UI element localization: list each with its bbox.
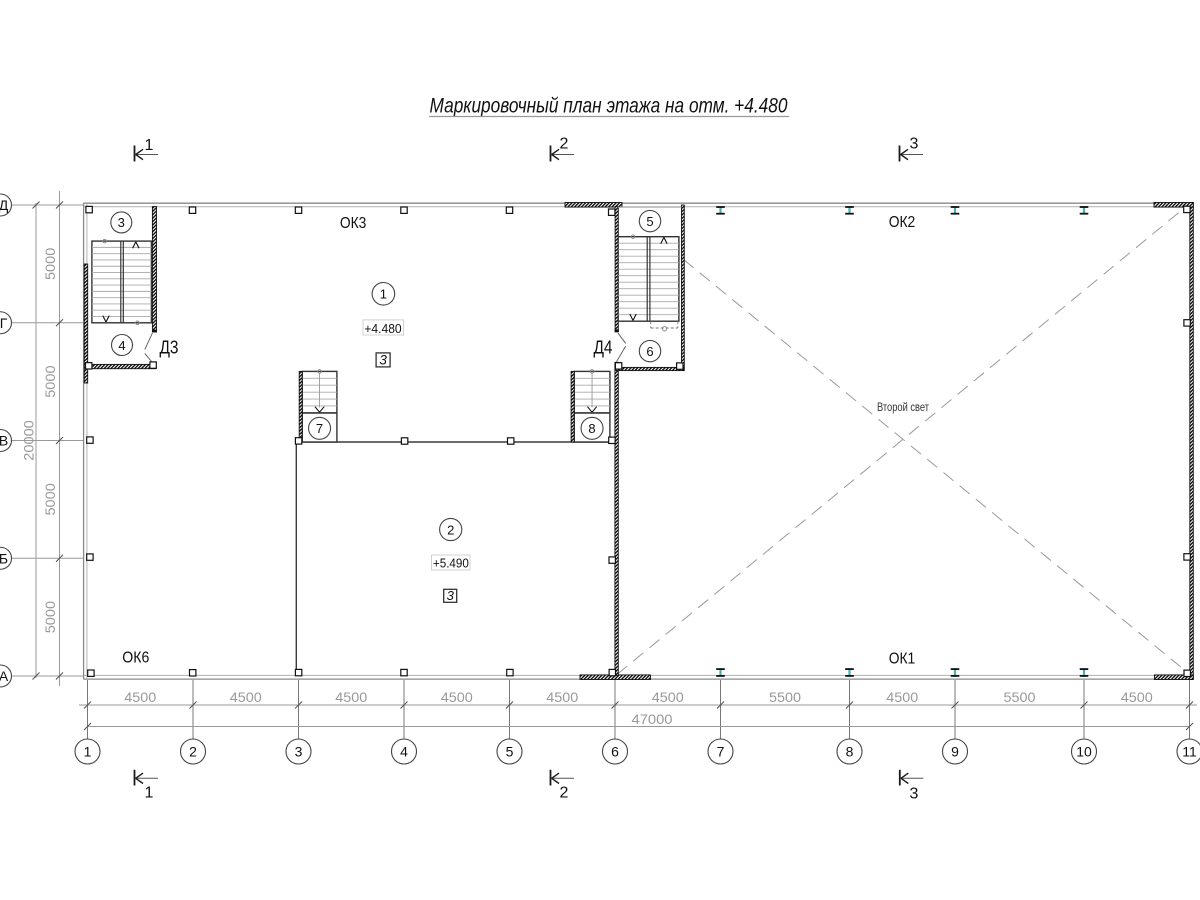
svg-text:11: 11	[1182, 744, 1197, 760]
svg-text:Маркировочный план этажа на от: Маркировочный план этажа на отм. +4.480	[430, 94, 788, 118]
svg-text:ОК3: ОК3	[340, 215, 367, 232]
svg-text:7: 7	[717, 744, 725, 760]
svg-text:2: 2	[560, 136, 569, 153]
svg-text:ОК6: ОК6	[122, 650, 149, 667]
svg-text:Д4: Д4	[594, 338, 613, 358]
svg-text:5000: 5000	[43, 365, 58, 398]
svg-text:8: 8	[588, 421, 595, 436]
svg-text:9: 9	[951, 744, 959, 760]
svg-text:2: 2	[189, 744, 197, 760]
svg-text:Д: Д	[0, 197, 9, 213]
svg-text:4500: 4500	[546, 690, 578, 705]
svg-text:5000: 5000	[43, 601, 58, 634]
svg-text:4500: 4500	[652, 690, 684, 705]
svg-text:5500: 5500	[769, 690, 801, 705]
svg-text:4500: 4500	[335, 690, 367, 705]
svg-text:5000: 5000	[43, 247, 58, 280]
svg-text:3: 3	[118, 215, 125, 230]
svg-text:+5.490: +5.490	[433, 556, 469, 571]
svg-text:4500: 4500	[886, 690, 918, 705]
svg-text:4500: 4500	[124, 690, 156, 705]
svg-text:В: В	[0, 433, 8, 449]
svg-text:5000: 5000	[43, 483, 58, 516]
svg-text:3: 3	[295, 744, 303, 760]
svg-text:1: 1	[84, 744, 92, 760]
svg-text:10: 10	[1076, 744, 1092, 760]
svg-text:Б: Б	[0, 550, 8, 566]
svg-text:ОК2: ОК2	[889, 214, 916, 231]
svg-text:2: 2	[560, 785, 569, 802]
svg-text:3: 3	[910, 786, 919, 803]
svg-text:4500: 4500	[230, 690, 262, 705]
svg-text:4500: 4500	[1121, 690, 1153, 705]
svg-text:Г: Г	[0, 315, 8, 331]
svg-text:6: 6	[611, 744, 619, 760]
svg-text:7: 7	[316, 421, 323, 436]
svg-text:А: А	[0, 668, 9, 684]
svg-text:4: 4	[118, 338, 125, 353]
svg-text:3: 3	[447, 588, 455, 603]
svg-text:3: 3	[910, 136, 919, 153]
svg-text:Второй свет: Второй свет	[877, 400, 929, 414]
svg-text:1: 1	[145, 137, 154, 154]
svg-text:8: 8	[846, 744, 854, 760]
svg-text:1: 1	[380, 287, 387, 302]
svg-text:5500: 5500	[1004, 690, 1036, 705]
svg-text:2: 2	[447, 522, 454, 537]
svg-text:20000: 20000	[22, 420, 37, 461]
svg-text:1: 1	[145, 785, 154, 802]
svg-text:3: 3	[379, 352, 387, 367]
svg-text:6: 6	[646, 344, 653, 359]
svg-text:4500: 4500	[441, 690, 473, 705]
svg-text:Д3: Д3	[160, 338, 179, 358]
svg-text:5: 5	[646, 214, 653, 229]
svg-text:4: 4	[400, 744, 408, 760]
svg-text:47000: 47000	[632, 712, 673, 727]
svg-text:ОК1: ОК1	[889, 651, 916, 668]
svg-text:5: 5	[506, 744, 514, 760]
svg-text:+4.480: +4.480	[364, 321, 401, 336]
